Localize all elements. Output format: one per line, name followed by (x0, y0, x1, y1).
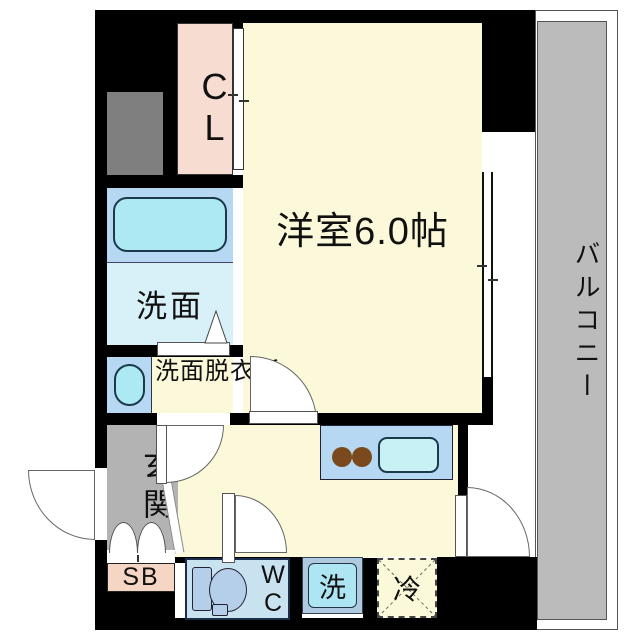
room-main: 洋室6.0帖 (243, 23, 482, 413)
dressing-label: 洗面脱衣所 (155, 359, 233, 385)
room-dressing: 洗面脱衣所 (107, 357, 233, 413)
balcony-window (482, 172, 493, 377)
washer-pan: 洗 (302, 557, 363, 614)
pipe-shaft (107, 92, 163, 177)
wall-washer-fridge-divider (363, 558, 377, 622)
window-tick-2 (488, 279, 498, 281)
shoebox-label: SB (122, 563, 159, 592)
kitchen-counter (320, 425, 453, 480)
closet-sliding-door (233, 28, 244, 170)
shoebox: SB (107, 563, 175, 592)
entrance-door-opening (95, 468, 107, 540)
main-room-label: 洋室6.0帖 (243, 200, 482, 255)
kitchen-sink (378, 437, 439, 473)
bath-door-strip (157, 342, 230, 356)
wall-bottom (95, 618, 537, 630)
wall-under-closet (95, 175, 243, 188)
refrigerator-space: 冷 (377, 558, 437, 618)
room-wc: WC (185, 558, 290, 620)
refrigerator-label: 冷 (393, 568, 421, 608)
shoebox-door-tick (137, 555, 139, 562)
washer-label: 洗 (319, 566, 346, 605)
washer-machine: 洗 (308, 563, 357, 608)
room-closet: CL (177, 23, 233, 175)
toilet-foot (212, 604, 228, 616)
bathtub (113, 197, 227, 252)
balcony-door-panel (455, 495, 467, 557)
bath-door-triangle-icon (204, 310, 228, 344)
wc-door-panel (222, 493, 235, 563)
wall-left-upper (95, 10, 107, 468)
balcony-label: バルコニー (539, 230, 605, 415)
wall-top (95, 10, 443, 23)
entrance-door-arc (28, 470, 95, 540)
stove-burner-right (352, 447, 372, 467)
closet-door-tick-2 (239, 100, 249, 102)
balcony-door-arc (467, 487, 530, 557)
dressing-door-panel (156, 425, 167, 484)
wall-wc-washer-divider (290, 558, 302, 622)
floorplan-canvas: バルコニー CL 洋室6.0帖 洗面 洗面脱衣所 玄関 (0, 0, 640, 640)
wc-label: WC (260, 561, 285, 617)
stove-burner-left (332, 447, 352, 467)
main-room-door-panel (249, 411, 318, 424)
dressing-door-opening (157, 413, 230, 425)
closet-label: CL (178, 66, 232, 148)
window-tick-1 (477, 265, 487, 267)
vanity-sink-bowl (114, 364, 145, 406)
closet-door-tick-1 (228, 94, 238, 96)
